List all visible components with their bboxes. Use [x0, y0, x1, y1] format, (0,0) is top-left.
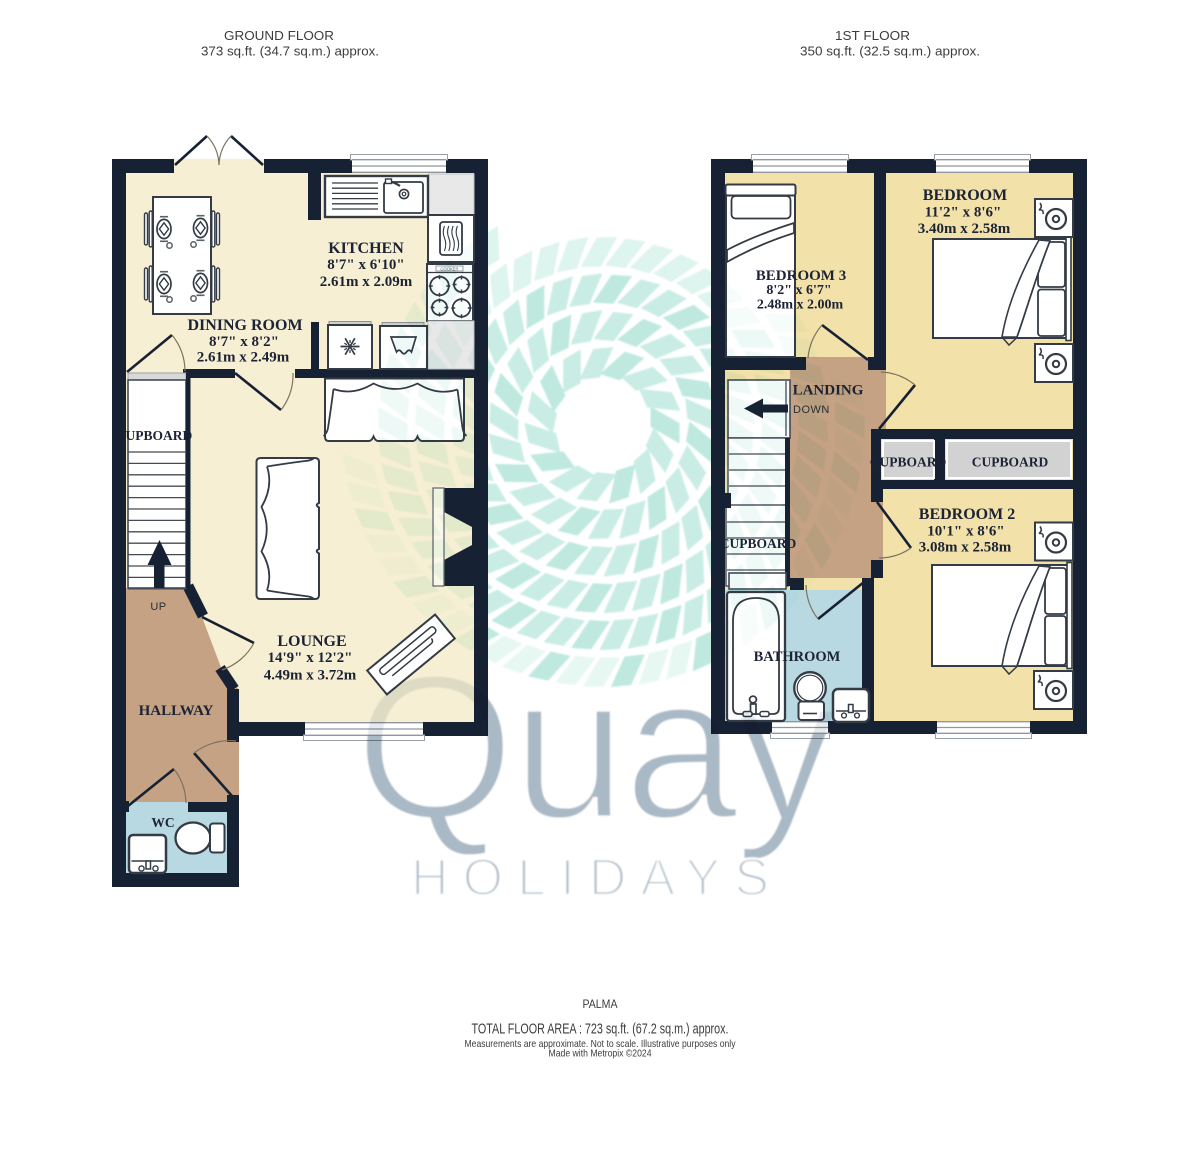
svg-text:2.48m x 2.00m: 2.48m x 2.00m	[757, 298, 844, 313]
svg-text:CUPBOARD: CUPBOARD	[870, 455, 947, 470]
svg-text:CUPBOARD: CUPBOARD	[972, 455, 1049, 470]
svg-text:3.08m x 2.58m: 3.08m x 2.58m	[919, 540, 1012, 556]
svg-text:GROUND FLOOR: GROUND FLOOR	[224, 28, 334, 43]
svg-text:8'7" x 6'10": 8'7" x 6'10"	[327, 257, 405, 273]
svg-text:BEDROOM: BEDROOM	[923, 187, 1007, 204]
svg-text:3.40m x 2.58m: 3.40m x 2.58m	[918, 221, 1011, 237]
svg-text:373 sq.ft. (34.7 sq.m.) approx: 373 sq.ft. (34.7 sq.m.) approx.	[201, 44, 379, 59]
svg-text:Made with Metropix ©2024: Made with Metropix ©2024	[549, 1048, 652, 1060]
svg-text:BEDROOM 2: BEDROOM 2	[919, 506, 1015, 523]
svg-text:TOTAL FLOOR AREA : 723 sq.ft.: TOTAL FLOOR AREA : 723 sq.ft. (67.2 sq.m…	[472, 1022, 729, 1038]
svg-text:DINING ROOM: DINING ROOM	[187, 317, 302, 334]
svg-text:2.61m x 2.09m: 2.61m x 2.09m	[320, 274, 413, 290]
svg-text:CUPBOARD: CUPBOARD	[116, 428, 193, 443]
svg-text:PALMA: PALMA	[583, 999, 618, 1011]
svg-text:8'2" x 6'7": 8'2" x 6'7"	[766, 283, 831, 298]
svg-text:14'9" x 12'2": 14'9" x 12'2"	[268, 650, 353, 666]
svg-text:8'7" x 8'2": 8'7" x 8'2"	[209, 334, 279, 350]
svg-text:1ST FLOOR: 1ST FLOOR	[835, 28, 910, 43]
svg-text:4.49m x 3.72m: 4.49m x 3.72m	[264, 668, 357, 684]
svg-text:WC: WC	[151, 815, 174, 830]
svg-text:KITCHEN: KITCHEN	[328, 240, 404, 257]
svg-text:HALLWAY: HALLWAY	[139, 703, 214, 719]
svg-text:LOUNGE: LOUNGE	[277, 633, 346, 650]
svg-text:11'2" x 8'6": 11'2" x 8'6"	[925, 205, 1002, 221]
svg-text:10'1" x 8'6": 10'1" x 8'6"	[927, 524, 1005, 540]
svg-text:350 sq.ft. (32.5 sq.m.) approx: 350 sq.ft. (32.5 sq.m.) approx.	[800, 44, 980, 59]
svg-text:BEDROOM 3: BEDROOM 3	[756, 268, 846, 284]
svg-text:UP: UP	[150, 601, 166, 613]
svg-text:2.61m x 2.49m: 2.61m x 2.49m	[197, 350, 290, 366]
